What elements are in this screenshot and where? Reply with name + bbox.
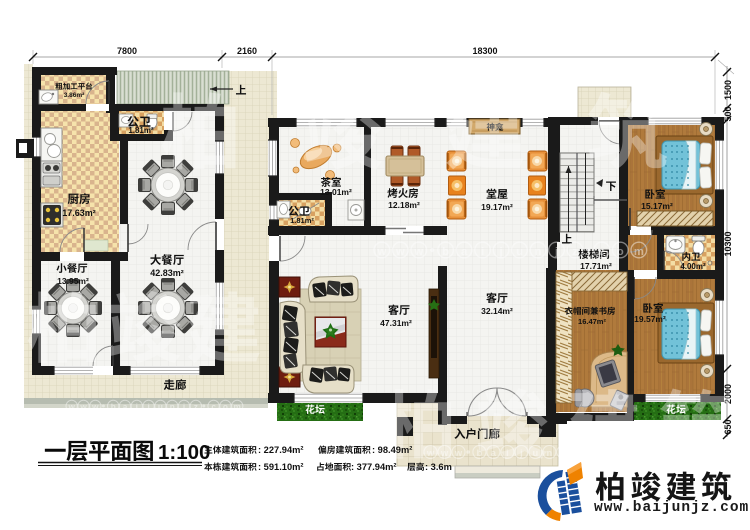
svg-text:j: j xyxy=(554,246,558,258)
svg-text:j: j xyxy=(519,447,523,458)
svg-text:b: b xyxy=(477,447,483,458)
svg-text:j: j xyxy=(561,447,565,458)
svg-text:47.31m²: 47.31m² xyxy=(380,318,412,328)
svg-text:w: w xyxy=(395,246,405,258)
svg-text:18300: 18300 xyxy=(472,46,497,56)
svg-text:w: w xyxy=(413,246,423,258)
svg-text:www.baijunjz.com: www.baijunjz.com xyxy=(594,500,749,516)
svg-text:19.17m²: 19.17m² xyxy=(481,202,513,212)
svg-text:j: j xyxy=(146,403,149,412)
svg-text:z: z xyxy=(572,246,578,258)
svg-text:o: o xyxy=(223,403,228,412)
svg-text:19.57m²: 19.57m² xyxy=(634,314,666,324)
svg-text:10300: 10300 xyxy=(723,231,733,256)
svg-text:u: u xyxy=(516,246,523,258)
svg-text:j: j xyxy=(499,246,503,258)
svg-text:w: w xyxy=(91,403,99,412)
svg-text:42.83m²: 42.83m² xyxy=(150,268,184,278)
svg-text:m: m xyxy=(622,447,630,458)
svg-text:16.47m²: 16.47m² xyxy=(578,317,606,326)
svg-text:c: c xyxy=(596,447,601,458)
svg-text:w: w xyxy=(376,246,386,258)
svg-text:7800: 7800 xyxy=(117,46,137,56)
svg-text:m: m xyxy=(234,403,241,412)
svg-text:15.17m²: 15.17m² xyxy=(641,201,673,211)
svg-text:1:100: 1:100 xyxy=(158,441,210,464)
svg-text:: 227.94m²: : 227.94m² xyxy=(258,445,303,455)
svg-text:o: o xyxy=(609,447,615,458)
svg-text:13.95m²: 13.95m² xyxy=(57,276,89,286)
svg-text:a: a xyxy=(461,246,468,258)
svg-text:a: a xyxy=(123,403,128,412)
svg-text:c: c xyxy=(599,246,605,258)
svg-text:i: i xyxy=(481,246,484,258)
svg-text:: 591.10m²: : 591.10m² xyxy=(258,462,303,472)
svg-text:n: n xyxy=(535,246,542,258)
svg-text:o: o xyxy=(617,246,624,258)
svg-text:: 98.49m²: : 98.49m² xyxy=(372,445,412,455)
svg-text:i: i xyxy=(506,447,509,458)
svg-text:650: 650 xyxy=(723,419,733,434)
svg-text:b: b xyxy=(111,403,116,412)
svg-text:17.63m²: 17.63m² xyxy=(62,208,96,218)
svg-text:j: j xyxy=(182,403,185,412)
svg-text:2160: 2160 xyxy=(237,46,257,56)
svg-text:c: c xyxy=(211,403,216,412)
svg-text:12.18m²: 12.18m² xyxy=(388,200,420,210)
svg-text:u: u xyxy=(158,403,163,412)
svg-text:n: n xyxy=(547,447,553,458)
svg-text:: 377.94m²: : 377.94m² xyxy=(351,462,396,472)
svg-text:3.86m²: 3.86m² xyxy=(64,92,85,99)
svg-text:w: w xyxy=(440,447,449,458)
svg-text:4.00m²: 4.00m² xyxy=(680,262,706,271)
svg-text:1.81m²: 1.81m² xyxy=(128,126,154,135)
svg-text:500: 500 xyxy=(723,106,733,121)
svg-text:32.14m²: 32.14m² xyxy=(481,306,513,316)
svg-text:m: m xyxy=(634,246,644,258)
svg-text:: 3.6m: : 3.6m xyxy=(425,462,452,472)
svg-text:z: z xyxy=(194,403,198,412)
svg-text:z: z xyxy=(575,447,580,458)
svg-text:w: w xyxy=(79,403,87,412)
svg-text:n: n xyxy=(170,403,175,412)
svg-text:w: w xyxy=(454,447,463,458)
svg-text:a: a xyxy=(491,447,497,458)
svg-text:i: i xyxy=(136,403,138,412)
svg-text:17.71m²: 17.71m² xyxy=(580,261,612,271)
svg-text:w: w xyxy=(426,447,435,458)
svg-text:13.01m²: 13.01m² xyxy=(320,187,352,197)
svg-text:w: w xyxy=(68,403,76,412)
svg-text:1.81m²: 1.81m² xyxy=(290,216,314,225)
svg-text:1500: 1500 xyxy=(723,80,733,100)
svg-text:u: u xyxy=(533,447,539,458)
svg-text:b: b xyxy=(442,246,449,258)
